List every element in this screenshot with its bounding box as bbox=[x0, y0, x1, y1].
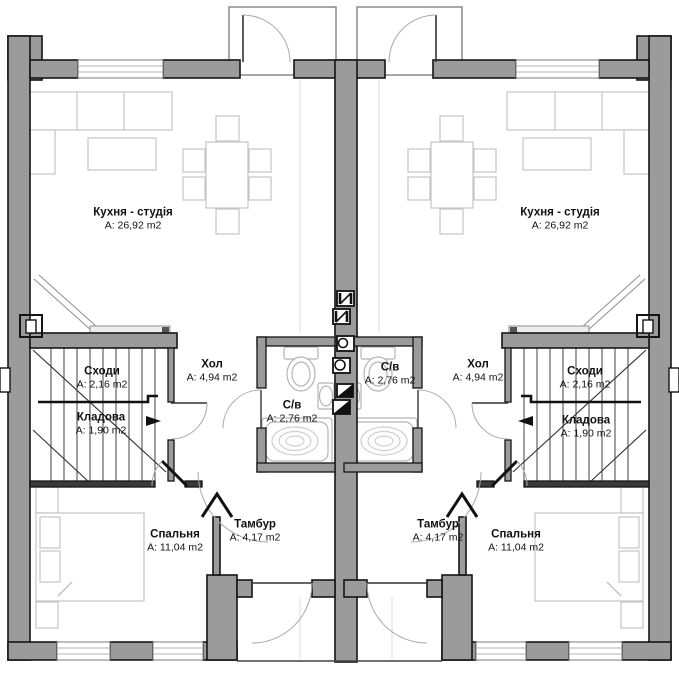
room-label-vestibule-left: Тамбур A: 4,17 m2 bbox=[230, 518, 281, 545]
stair-railing-right bbox=[509, 275, 645, 336]
exterior-box-left bbox=[0, 368, 10, 392]
coffee-table-left bbox=[88, 138, 156, 170]
room-label-bathroom-left: С/в A: 2,76 m2 bbox=[267, 399, 318, 426]
floor-plan: Кухня - студія A: 26,92 m2 Кухня - студі… bbox=[0, 0, 679, 700]
terrace-door-right bbox=[389, 15, 436, 62]
stair-cut-line-left bbox=[38, 396, 158, 402]
coffee-table-right bbox=[523, 138, 591, 170]
bathroom-door-left bbox=[223, 390, 261, 428]
stair-railing-left bbox=[34, 275, 170, 336]
room-label-hall-right: Хол A: 4,94 m2 bbox=[453, 358, 504, 385]
storage-door-left bbox=[171, 403, 207, 439]
room-label-kitchen-right: Кухня - студія A: 26,92 m2 bbox=[520, 206, 599, 233]
stair-direction-arrow-left bbox=[146, 416, 161, 426]
room-label-storage-right: Кладова A: 1,90 m2 bbox=[561, 414, 612, 441]
room-label-storage-left: Кладова A: 1,90 m2 bbox=[76, 411, 127, 438]
dining-set-right bbox=[408, 116, 496, 234]
room-label-bathroom-right: С/в A: 2,76 m2 bbox=[365, 361, 416, 388]
room-label-stairs-left: Сходи A: 2,16 m2 bbox=[77, 365, 128, 392]
storage-door-right bbox=[472, 403, 508, 439]
entry-door-left bbox=[252, 583, 312, 643]
room-label-bedroom-right: Спальня A: 11,04 m2 bbox=[488, 528, 544, 555]
room-label-hall-left: Хол A: 4,94 m2 bbox=[187, 358, 238, 385]
room-label-stairs-right: Сходи A: 2,16 m2 bbox=[560, 365, 611, 392]
stair-cut-line-right bbox=[521, 396, 641, 402]
room-label-vestibule-right: Тамбур A: 4,17 m2 bbox=[413, 518, 464, 545]
stair-direction-arrow-right bbox=[518, 416, 533, 426]
floor-plan-drawing bbox=[0, 0, 679, 700]
room-label-kitchen-left: Кухня - студія A: 26,92 m2 bbox=[93, 206, 172, 233]
bed-left bbox=[36, 487, 144, 628]
dining-set-left bbox=[183, 116, 271, 234]
room-label-bedroom-left: Спальня A: 11,04 m2 bbox=[147, 528, 203, 555]
exterior-box-right bbox=[669, 368, 679, 392]
entry-door-right bbox=[367, 583, 427, 643]
bathroom-door-right bbox=[418, 390, 456, 428]
toilet-left bbox=[284, 347, 318, 391]
bed-right bbox=[535, 487, 643, 628]
sink-left bbox=[318, 383, 334, 409]
terrace-door-left bbox=[243, 15, 290, 62]
